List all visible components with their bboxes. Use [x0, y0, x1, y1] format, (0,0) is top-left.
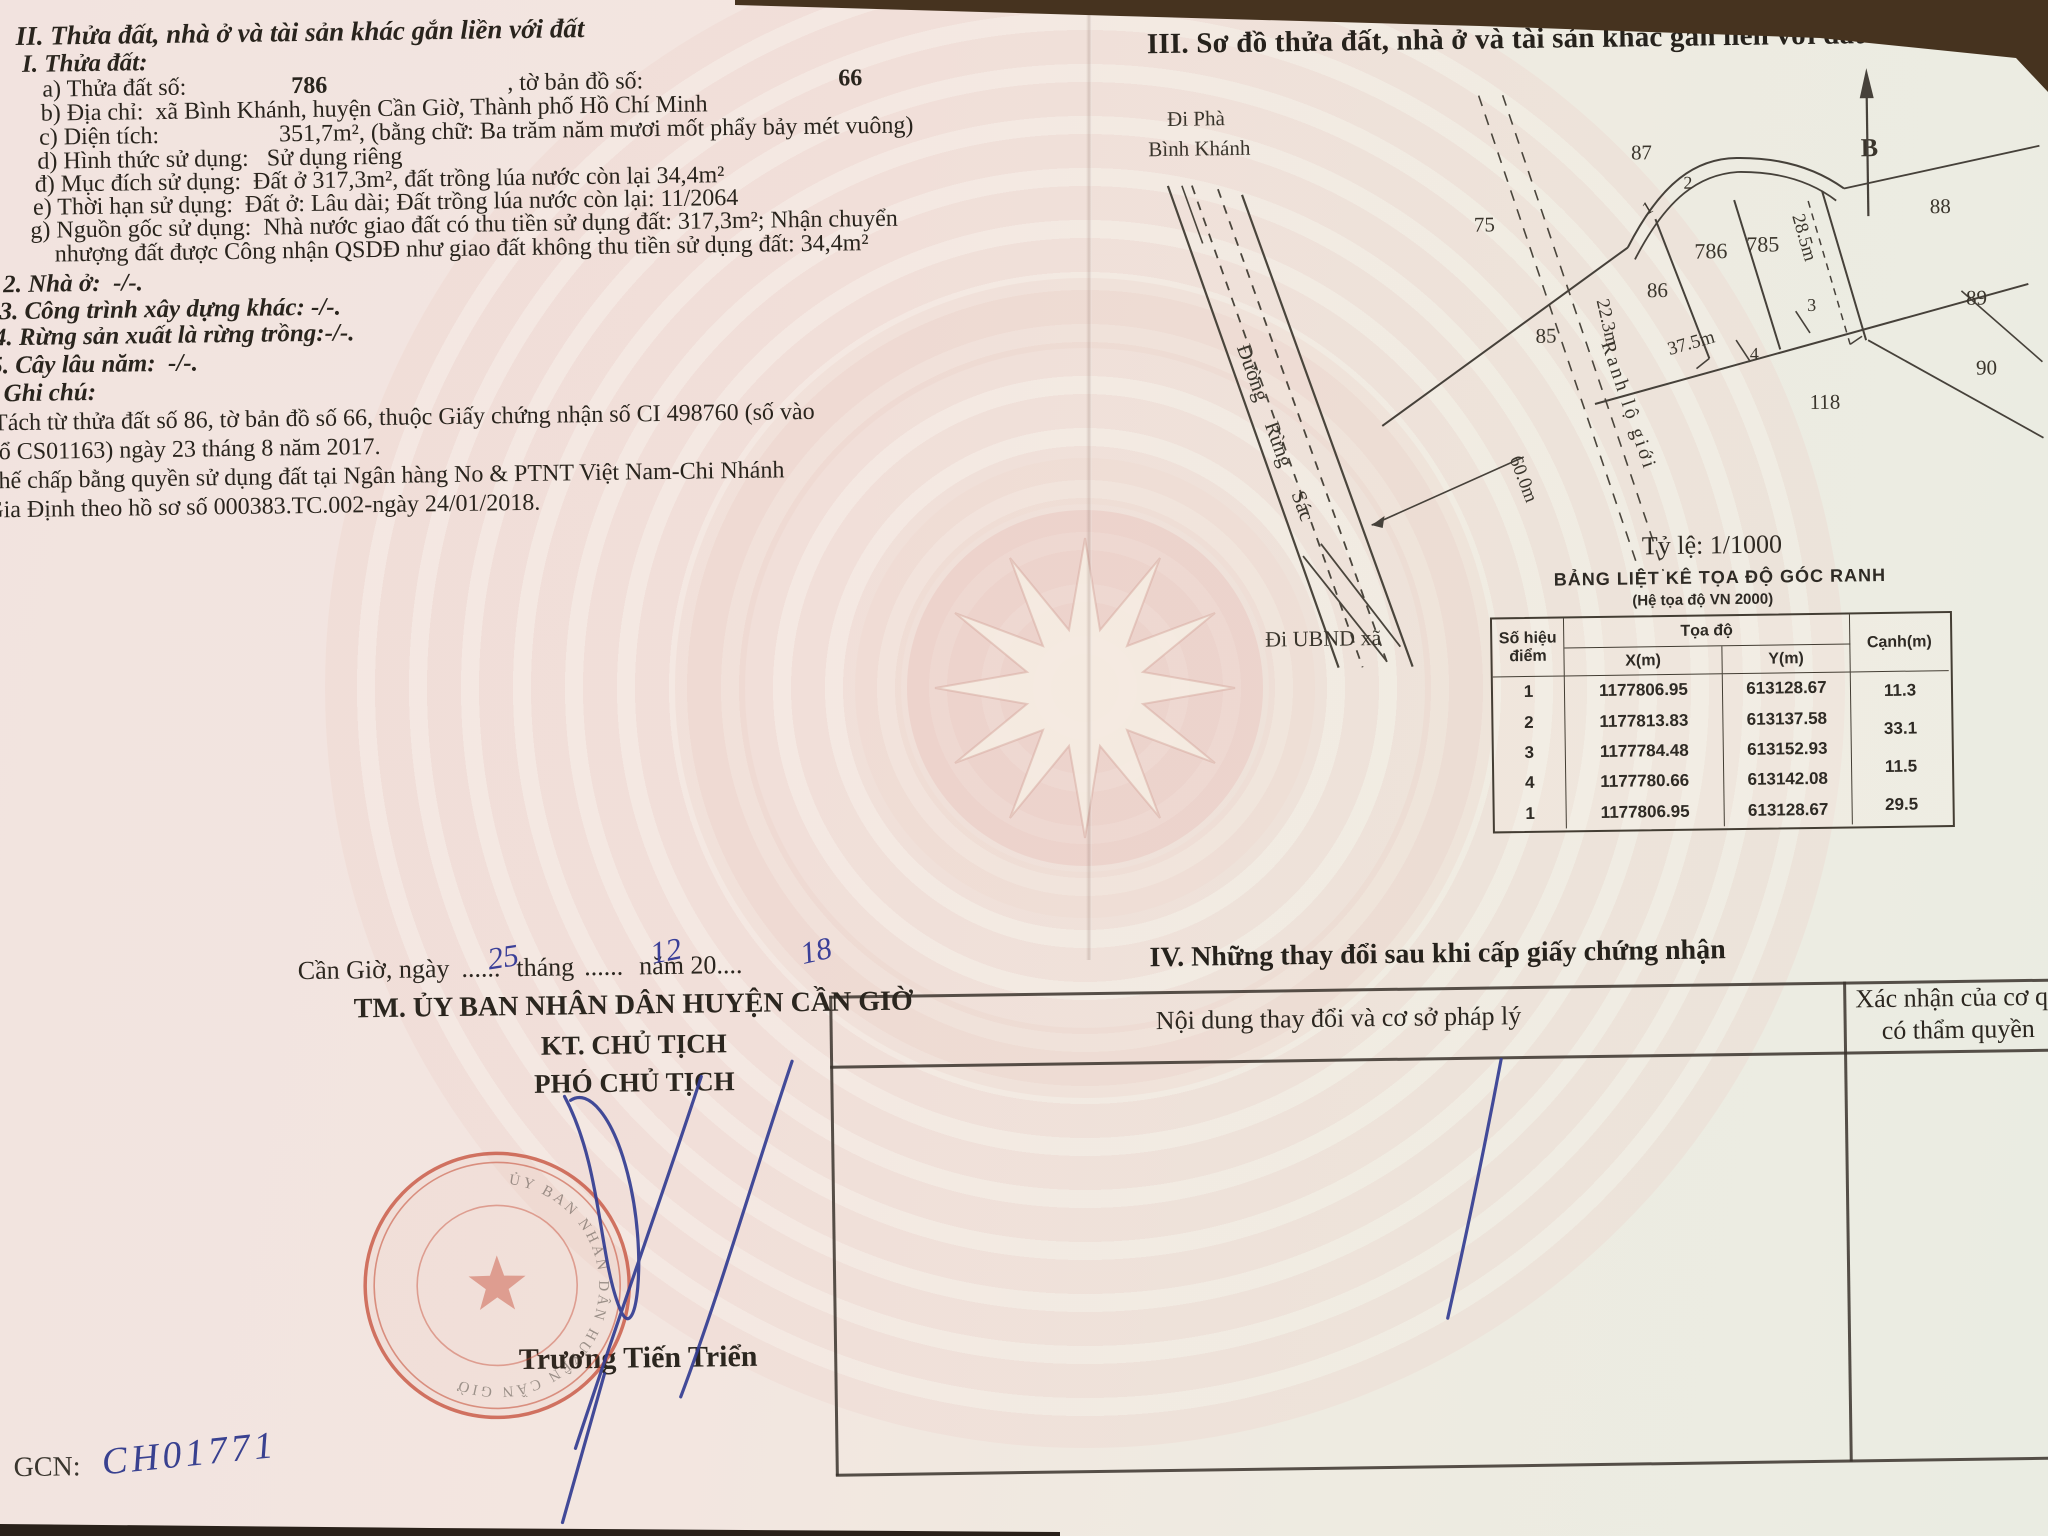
parcel-85: 85: [1535, 324, 1556, 348]
section2-title: II. Thửa đất, nhà ở và tài sản khác gắn …: [15, 14, 584, 50]
point-1-close: 1: [1525, 804, 1535, 824]
note-line4: Gia Định theo hồ sơ số 000383.TC.002-ngà…: [0, 491, 540, 524]
section2-sub-title: I. Thửa đất:: [22, 50, 148, 78]
vice-chairman-title: PHÓ CHỦ TỊCH: [234, 1062, 1034, 1104]
coord-col-x-header: X(m): [1564, 646, 1722, 676]
y-value-2: 613137.58: [1747, 708, 1828, 729]
kt-chairman-line: KT. CHỦ TỊCH: [234, 1024, 1034, 1066]
point-1: 1: [1524, 682, 1534, 702]
road-name-word3: Sác: [1287, 487, 1320, 524]
label-boundary: Ranh lộ giới: [1596, 338, 1660, 473]
map-sheet-value: 66: [838, 65, 862, 91]
handwritten-year: 18: [797, 930, 835, 972]
handwritten-month: 12: [647, 930, 684, 971]
item-house: 2. Nhà ở: -/-.: [3, 270, 143, 298]
road-name-word1: Đường: [1232, 341, 1275, 405]
gcn-serial-label: GCN:: [13, 1451, 80, 1484]
gcn-serial-handwritten: CH01771: [100, 1423, 279, 1485]
official-seal-icon: ỦY BAN NHÂN DÂN HUYỆN CẦN GIỜ: [363, 1152, 631, 1420]
parcel-number-value: 786: [291, 73, 327, 100]
month-dots: ......: [584, 952, 623, 982]
parcel-785: 785: [1746, 231, 1779, 256]
label-to-ferry-1: Đi Phà: [1167, 106, 1226, 131]
parcel-89: 89: [1966, 286, 1987, 310]
coord-col-point-header: Số hiệu điểm: [1492, 618, 1565, 677]
note-line2: sổ CS01163) ngày 23 tháng 8 năm 2017.: [0, 435, 381, 466]
handwritten-day: 25: [485, 937, 521, 977]
year-dots: ....: [716, 950, 742, 979]
point-4: 4: [1525, 773, 1535, 793]
north-label: B: [1861, 133, 1879, 162]
coord-col-point-line2: điểm: [1509, 647, 1547, 666]
item-forest: 4. Rừng sản xuất là rừng trồng:-/-.: [0, 320, 355, 351]
parcel-87: 87: [1631, 140, 1652, 164]
x-value-1: 1177806.95: [1599, 680, 1688, 701]
vertex-2: 2: [1683, 173, 1692, 193]
coord-point-values: 1 2 3 4 1: [1493, 676, 1567, 829]
item-notes-heading: 6. Ghi chú:: [0, 380, 96, 408]
edge-3-4: 11.5: [1885, 757, 1917, 777]
edge-1-2: 11.3: [1884, 681, 1916, 701]
point-3: 3: [1524, 743, 1534, 763]
seal-star-icon: [468, 1255, 526, 1310]
handwritten-signature: [556, 1051, 1507, 1522]
note-line1: Tách từ thửa đất số 86, tờ bản đồ số 66,…: [0, 400, 815, 437]
x-value-2: 1177813.83: [1599, 710, 1688, 731]
y-value-3: 613152.93: [1747, 739, 1828, 760]
month-word: tháng: [516, 952, 574, 982]
road-rung-sac: [1168, 183, 1413, 670]
dim-37-5m: 37.5m: [1665, 327, 1717, 360]
s4-col-confirm-header-2: có thẩm quyền: [1882, 1012, 2048, 1046]
edge-2-3: 33.1: [1884, 719, 1917, 739]
item-perennial-trees: 5. Cây lâu năm: -/-.: [0, 350, 198, 379]
x-value-5: 1177806.95: [1601, 801, 1690, 822]
signing-authority: TM. ỦY BAN NHÂN DÂN HUYỆN CẦN GIỜ: [233, 984, 1033, 1027]
x-value-4: 1177780.66: [1600, 771, 1689, 792]
parcel-90: 90: [1976, 355, 1997, 379]
coord-col-edge-header: Cạnh(m): [1850, 613, 1949, 672]
road-boundary-lines: [1479, 93, 1664, 573]
dim-60-0m: 60.0m: [1505, 453, 1542, 506]
coord-edge-values: 11.3 33.1 11.5 29.5: [1851, 671, 1951, 824]
dim-28-5m: 28.5m: [1787, 212, 1820, 264]
parcel-786: 786: [1694, 238, 1727, 263]
parcel-75: 75: [1474, 212, 1495, 236]
label-to-ubnd: Đi UBND xã: [1265, 625, 1382, 652]
coord-x-values: 1177806.95 1177813.83 1177784.48 1177780…: [1565, 674, 1725, 828]
section4-title: IV. Những thay đổi sau khi cấp giấy chứn…: [1032, 933, 1842, 976]
coord-col-point-line1: Số hiệu: [1499, 629, 1557, 648]
point-2: 2: [1524, 712, 1534, 732]
label-to-ferry-2: Bình Khánh: [1148, 136, 1251, 161]
coord-y-values: 613128.67 613137.58 613152.93 613142.08 …: [1723, 672, 1853, 826]
coord-table: Số hiệu điểm Tọa độ Cạnh(m) X(m) Y(m) 1 …: [1490, 611, 1955, 833]
parcel-boundaries: [1378, 146, 2043, 447]
vertex-3: 3: [1807, 295, 1816, 315]
y-value-1: 613128.67: [1746, 678, 1827, 699]
dim-22-3m: 22.3m: [1592, 297, 1623, 349]
x-value-3: 1177784.48: [1600, 741, 1689, 762]
parcel-88: 88: [1930, 194, 1951, 218]
vertex-1: 1: [1638, 197, 1656, 219]
edge-4-1: 29.5: [1885, 795, 1918, 815]
s4-col-confirm-header-1: Xác nhận của cơ quan: [1855, 981, 2048, 1015]
place-date-prefix: Cần Giờ, ngày: [298, 954, 450, 985]
s4-col-content-header: Nội dung thay đổi và cơ sở pháp lý: [1033, 999, 1643, 1038]
certificate-page: II. Thửa đất, nhà ở và tài sản khác gắn …: [0, 0, 2048, 1536]
map-scale-label: Tỷ lệ: 1/1000: [1607, 529, 1817, 562]
dim-60m-line: [1371, 457, 1525, 528]
north-arrow-icon: B: [1859, 68, 1879, 216]
vertex-4: 4: [1750, 344, 1759, 364]
coord-col-coord-header: Tọa độ: [1564, 614, 1850, 648]
y-value-5: 613128.67: [1748, 800, 1829, 821]
s4-table-bottom-border: [836, 1457, 2048, 1477]
document-content: II. Thửa đất, nhà ở và tài sản khác gắn …: [0, 0, 2048, 1536]
y-value-4: 613142.08: [1747, 769, 1828, 790]
parcel-86: 86: [1647, 278, 1668, 302]
parcel-118: 118: [1809, 390, 1840, 414]
coord-col-y-header: Y(m): [1722, 644, 1850, 674]
signer-name: Trương Tiến Triển: [338, 1337, 938, 1379]
